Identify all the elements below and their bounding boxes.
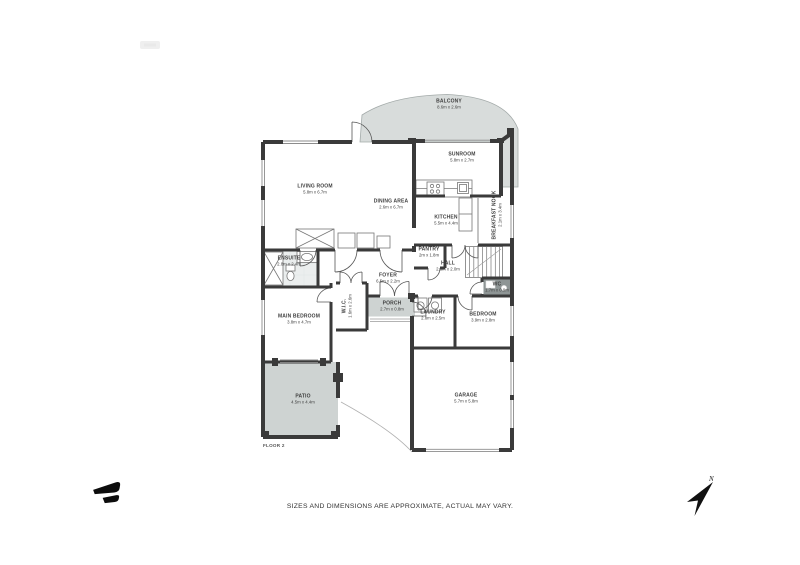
compass-arrow-icon	[683, 476, 721, 522]
compass: N	[683, 476, 721, 522]
porch-region	[368, 298, 415, 317]
stairs	[466, 247, 503, 278]
brand-logo	[91, 479, 127, 505]
driveway-curve	[341, 402, 412, 452]
floor-label: FLOOR 2	[263, 443, 285, 448]
patio-region	[264, 362, 338, 436]
porch-steps	[370, 319, 413, 322]
watermark	[140, 41, 160, 49]
disclaimer-text: SIZES AND DIMENSIONS ARE APPROXIMATE, AC…	[0, 503, 800, 510]
compass-north-label: N	[709, 475, 714, 483]
brand-logo-icon	[91, 479, 127, 505]
